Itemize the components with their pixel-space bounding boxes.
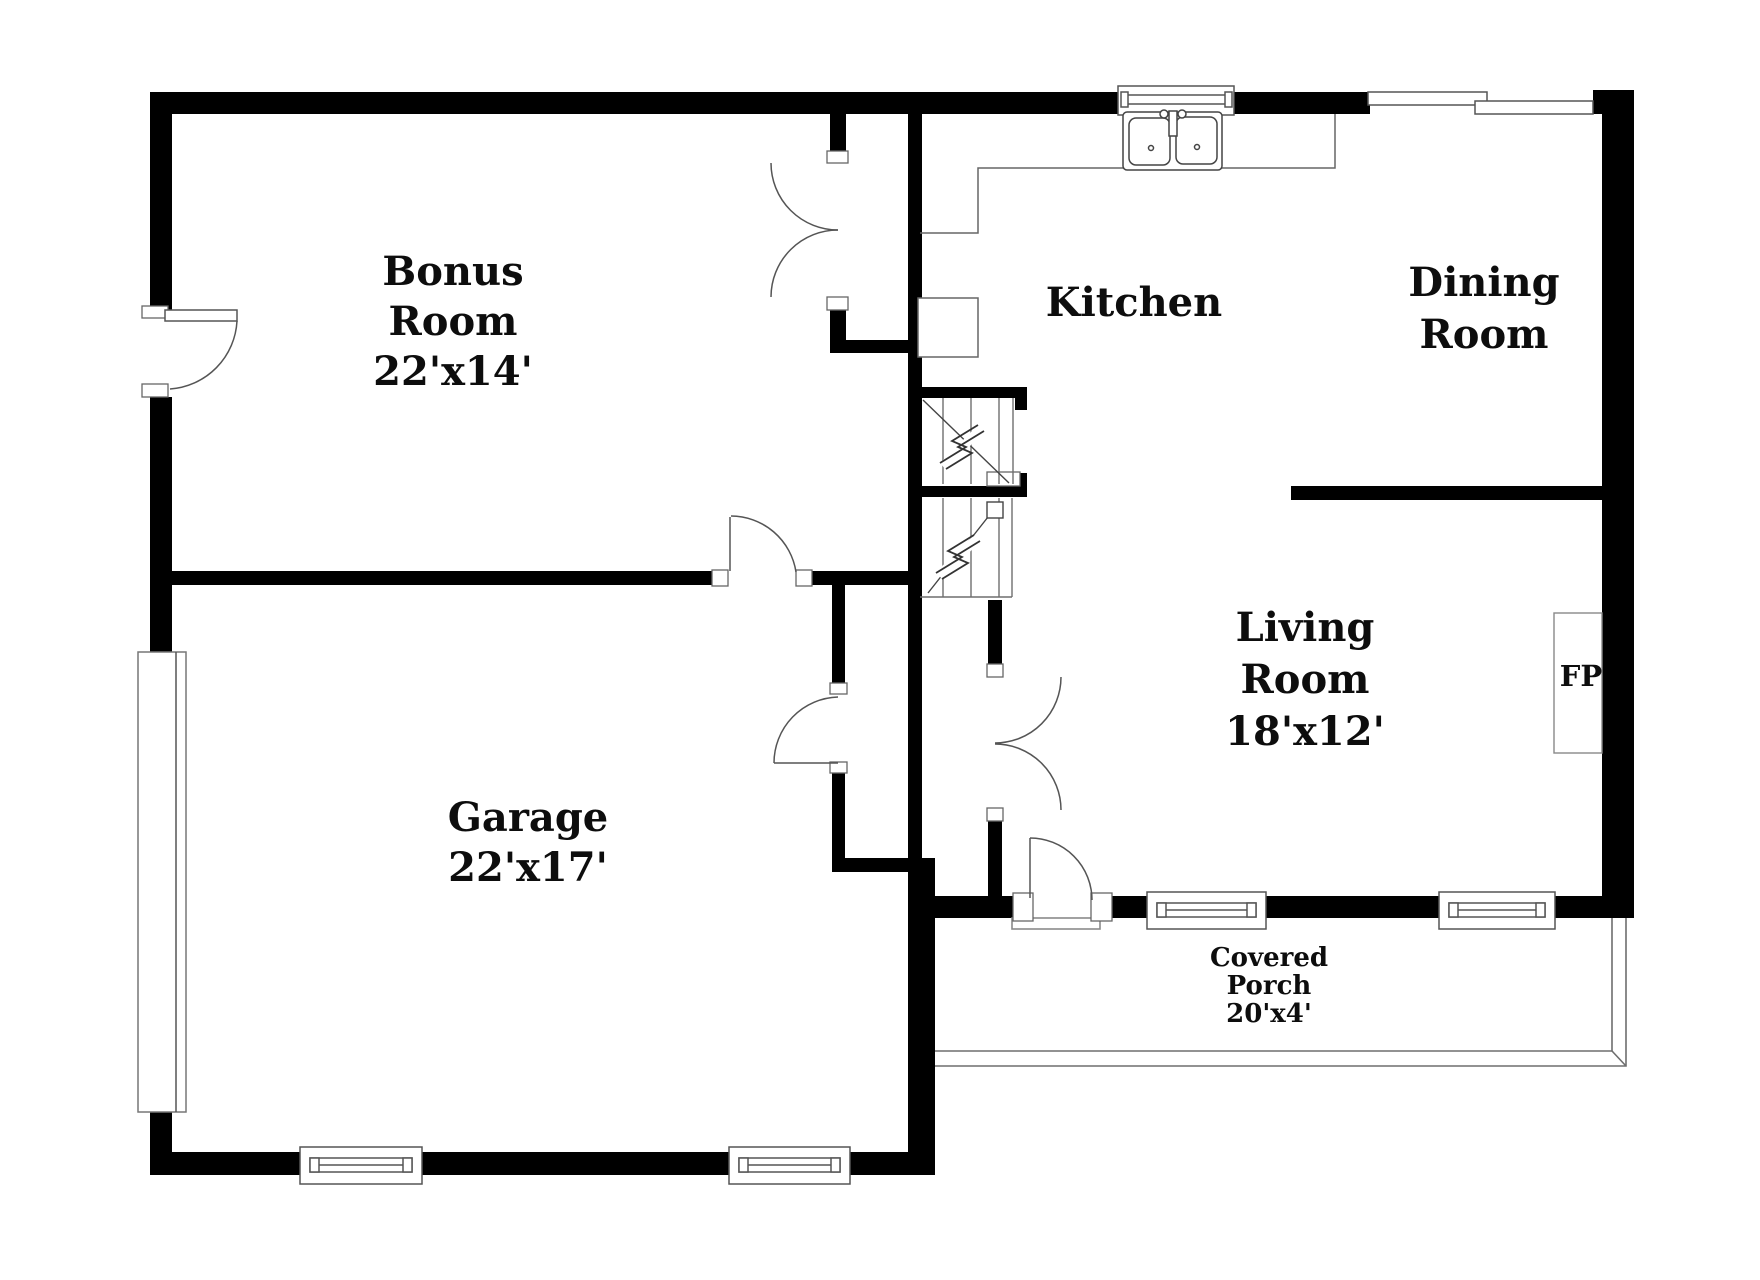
kitchen-sink — [1123, 110, 1222, 170]
window-end-cap — [1157, 903, 1166, 917]
door-frame — [712, 570, 728, 586]
front-entry-door — [1030, 838, 1092, 900]
bonus-closet-double-door — [771, 163, 838, 297]
dining-window — [1368, 92, 1593, 114]
hall-living-double-door — [995, 677, 1061, 810]
wall-left-mid — [150, 397, 172, 652]
room-name-line: Room — [1408, 309, 1559, 361]
garage-bonus-door — [730, 516, 796, 572]
covered-porch-label: Covered Porch 20'x4' — [1210, 944, 1328, 1028]
door-frame — [987, 664, 1003, 677]
stair-newel-post — [987, 502, 1003, 518]
room-name-line: Bonus — [373, 247, 533, 297]
dining-room-label: Dining Room — [1408, 257, 1559, 361]
door-swing-arc — [995, 744, 1061, 810]
wall-garage-divider-2 — [811, 571, 920, 585]
room-name-line: Porch — [1210, 972, 1328, 1000]
wall-hall-east-top — [988, 600, 1002, 664]
window-end-cap — [1247, 903, 1256, 917]
wall-living-bottom-1 — [920, 896, 1013, 918]
front-door-sill — [1091, 893, 1112, 921]
door-frame — [827, 151, 848, 163]
refrigerator — [918, 298, 978, 357]
room-name-line: Garage — [448, 793, 609, 843]
room-name-line: Room — [373, 297, 533, 347]
wall-top-left — [150, 92, 920, 114]
garage-label: Garage 22'x17' — [448, 793, 609, 893]
door-swing-arc — [1030, 838, 1092, 900]
wall-top-right-corner — [1593, 90, 1634, 114]
bonus-room-label: Bonus Room 22'x14' — [373, 247, 533, 397]
wall-top-kitchen — [920, 92, 1120, 114]
wall-garage-bottom-1 — [150, 1152, 307, 1175]
wall-hall-east-bottom — [988, 821, 1002, 897]
door-swing-arc — [774, 697, 838, 763]
window-end-cap — [739, 1158, 748, 1172]
living-room-label: Living Room 18'x12' — [1225, 602, 1385, 758]
door-frame — [142, 384, 168, 397]
room-name-line: Living — [1225, 602, 1385, 654]
wall-mudroom-bottom — [832, 858, 912, 872]
wall-stair-top-stub — [1015, 387, 1027, 410]
garage-door-panel — [138, 652, 186, 1112]
floor-plan-drawing — [0, 0, 1760, 1280]
living-window-left — [1147, 892, 1266, 929]
garage-mudroom-door — [774, 697, 838, 763]
door-frame — [830, 683, 847, 694]
porch-corner-miter — [1612, 1051, 1626, 1066]
wall-mudroom-left-2 — [832, 773, 845, 858]
faucet-spout — [1169, 111, 1177, 136]
wall-dining-living-divider — [1291, 486, 1634, 500]
room-dims: 18'x12' — [1225, 706, 1385, 758]
stair-landing-sill — [987, 472, 1020, 486]
door-swing-arc — [731, 516, 796, 572]
fireplace-label: FP — [1560, 661, 1602, 691]
window-end-cap — [310, 1158, 319, 1172]
door-frame — [827, 297, 848, 310]
garage-overhead-door — [138, 652, 186, 1112]
floor-plan-canvas: Bonus Room 22'x14' Kitchen Dining Room L… — [0, 0, 1760, 1280]
door-leaf — [165, 310, 237, 321]
door-swing-arc — [170, 321, 237, 389]
stair-flight-upper — [923, 398, 1013, 484]
wall-closet-bottom — [830, 340, 920, 353]
room-name-line: Covered — [1210, 944, 1328, 972]
wall-top-mid — [1230, 92, 1370, 114]
wall-garage-divider-1 — [172, 571, 713, 585]
window-pane-right — [1475, 101, 1593, 114]
door-frame — [987, 808, 1003, 821]
wall-left-upper — [150, 92, 172, 318]
wall-center-vertical — [908, 112, 922, 872]
fireplace-abbrev: FP — [1560, 661, 1602, 691]
stair-break-gap — [940, 425, 984, 470]
faucet-handle — [1160, 110, 1168, 118]
room-dims: 22'x14' — [373, 347, 533, 397]
window-pane-left — [1368, 92, 1487, 105]
door-frame — [142, 306, 168, 318]
faucet-handle — [1178, 110, 1186, 118]
room-dims: 22'x17' — [448, 843, 609, 893]
living-window-right — [1439, 892, 1555, 929]
door-swing-arc — [771, 163, 838, 230]
wall-bonus-east-top — [830, 112, 846, 152]
window-end-cap — [1225, 92, 1232, 107]
bonus-exterior-door — [165, 310, 237, 389]
wall-right — [1602, 112, 1634, 918]
room-dims: 20'x4' — [1210, 1000, 1328, 1028]
wall-garage-bottom-2 — [420, 1152, 731, 1175]
window-end-cap — [1449, 903, 1458, 917]
wall-stair-mid — [920, 486, 1027, 497]
wall-living-bottom-2 — [1112, 896, 1149, 918]
door-swing-arc — [771, 230, 838, 297]
wall-stair-top — [920, 387, 1027, 398]
garage-window-right — [729, 1147, 850, 1184]
wall-mudroom-left-1 — [832, 585, 845, 683]
stairs — [920, 398, 1013, 597]
wall-living-bottom-4 — [1553, 896, 1634, 918]
wall-living-bottom-3 — [1264, 896, 1441, 918]
room-name-line: Kitchen — [1046, 278, 1222, 328]
window-end-cap — [1121, 92, 1128, 107]
room-name-line: Dining — [1408, 257, 1559, 309]
door-frames — [142, 151, 1112, 921]
garage-window-left — [300, 1147, 422, 1184]
window-end-cap — [1536, 903, 1545, 917]
door-frame — [796, 570, 812, 586]
door-swing-arc — [995, 677, 1061, 743]
room-name-line: Room — [1225, 654, 1385, 706]
window-end-cap — [831, 1158, 840, 1172]
window-end-cap — [403, 1158, 412, 1172]
stair-flight-lower — [920, 498, 1012, 597]
kitchen-label: Kitchen — [1046, 278, 1222, 328]
